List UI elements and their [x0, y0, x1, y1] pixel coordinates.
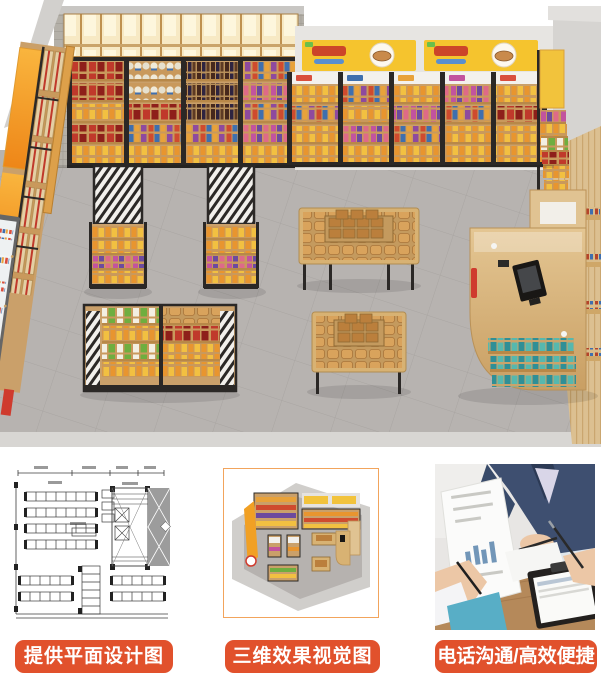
- promo-banner-left: [302, 40, 416, 71]
- store-scene: [0, 0, 601, 447]
- thumbnail-consult-photo: [435, 464, 595, 630]
- wall-shelf-unit-right: [287, 72, 547, 167]
- floor-plan-drawing: [12, 464, 172, 622]
- caption-3d-view: 三维效果视觉图: [225, 640, 380, 673]
- mini-store-render: [224, 469, 378, 617]
- caption-contact-label: 电话沟通/高效便捷: [437, 640, 594, 673]
- promo-image: 提供平面设计图 三维效果视觉图 电话沟通/高效便捷: [0, 0, 601, 679]
- store-render-3d: [0, 0, 601, 447]
- mini-back-left-shelf: [254, 493, 298, 529]
- consultation-photo: [435, 464, 595, 630]
- gondola-run-left: [84, 166, 152, 299]
- counter-red-sign: [471, 268, 477, 298]
- thumbnail-3d-view: [223, 468, 379, 618]
- plan-shaded-zone: [148, 488, 170, 566]
- caption-floor-plan: 提供平面设计图: [15, 640, 173, 673]
- thumbnail-floor-plan: [12, 464, 172, 622]
- caption-floor-plan-label: 提供平面设计图: [24, 640, 164, 673]
- caption-3d-view-label: 三维效果视觉图: [232, 640, 372, 673]
- double-gondola: [80, 305, 240, 403]
- caption-contact: 电话沟通/高效便捷: [435, 640, 597, 673]
- lit-display-cabinets: [64, 14, 298, 58]
- wall-shelf-unit-left: [67, 57, 300, 168]
- counter-front-shelves: [488, 338, 576, 387]
- promo-banner-right: [424, 40, 538, 71]
